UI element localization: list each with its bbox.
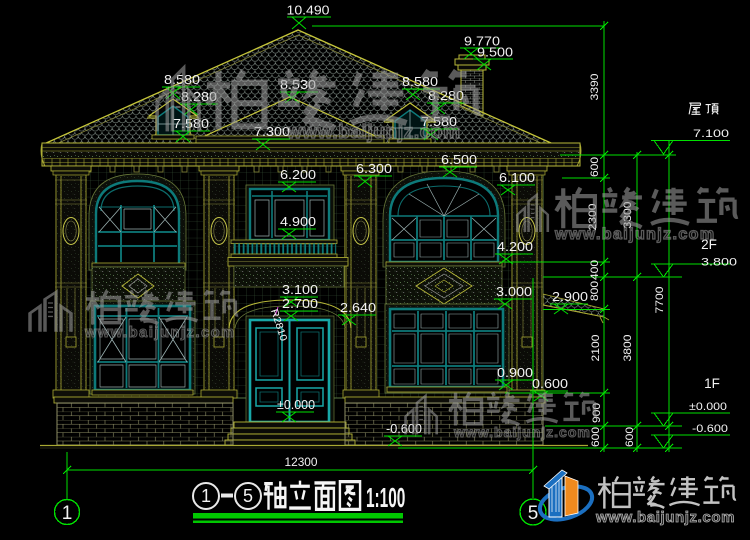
svg-text:600: 600 (589, 157, 601, 177)
svg-text:2.700: 2.700 (282, 296, 318, 311)
svg-text:2.900: 2.900 (552, 289, 588, 304)
svg-text:600: 600 (624, 427, 636, 447)
svg-text:600: 600 (590, 427, 602, 447)
svg-text:4.900: 4.900 (280, 214, 316, 229)
svg-text:7.580: 7.580 (173, 116, 209, 131)
svg-text:www.baijunjz.com: www.baijunjz.com (286, 122, 461, 143)
svg-text:1:100: 1:100 (366, 482, 405, 513)
svg-text:1: 1 (62, 503, 73, 524)
svg-text:3.800: 3.800 (701, 257, 737, 269)
svg-text:2.640: 2.640 (340, 300, 376, 315)
svg-text:6.100: 6.100 (499, 170, 535, 185)
svg-text:www.baijunjz.com: www.baijunjz.com (84, 325, 236, 341)
svg-text:6.300: 6.300 (356, 161, 392, 176)
svg-text:7.100: 7.100 (693, 128, 729, 140)
svg-text:1F: 1F (704, 376, 720, 391)
svg-text:3800: 3800 (622, 335, 634, 362)
svg-text:5: 5 (528, 503, 539, 524)
svg-text:4.200: 4.200 (497, 239, 533, 254)
svg-text:3.000: 3.000 (496, 284, 532, 299)
svg-text:±0.000: ±0.000 (277, 397, 315, 412)
svg-text:www.baijunjz.com: www.baijunjz.com (453, 424, 591, 440)
svg-text:10.490: 10.490 (287, 3, 330, 18)
svg-text:9.500: 9.500 (477, 45, 513, 60)
svg-text:6.200: 6.200 (280, 167, 316, 182)
svg-text:3390: 3390 (589, 74, 601, 101)
svg-text:0.600: 0.600 (532, 376, 568, 391)
svg-text:400: 400 (589, 260, 601, 280)
svg-text:1: 1 (201, 486, 211, 506)
svg-text:5: 5 (243, 486, 253, 506)
svg-text:7700: 7700 (654, 287, 666, 314)
svg-text:www.baijunjz.com: www.baijunjz.com (554, 226, 716, 243)
svg-text:800: 800 (589, 281, 601, 301)
svg-text:-0.600: -0.600 (692, 423, 728, 435)
svg-text:6.500: 6.500 (441, 152, 477, 167)
svg-text:12300: 12300 (285, 457, 318, 469)
svg-text:0.900: 0.900 (497, 365, 533, 380)
svg-text:±0.000: ±0.000 (689, 401, 727, 413)
svg-text:3.100: 3.100 (282, 282, 318, 297)
svg-text:www.baijunjz.com: www.baijunjz.com (595, 509, 735, 526)
svg-text:2100: 2100 (590, 335, 602, 362)
